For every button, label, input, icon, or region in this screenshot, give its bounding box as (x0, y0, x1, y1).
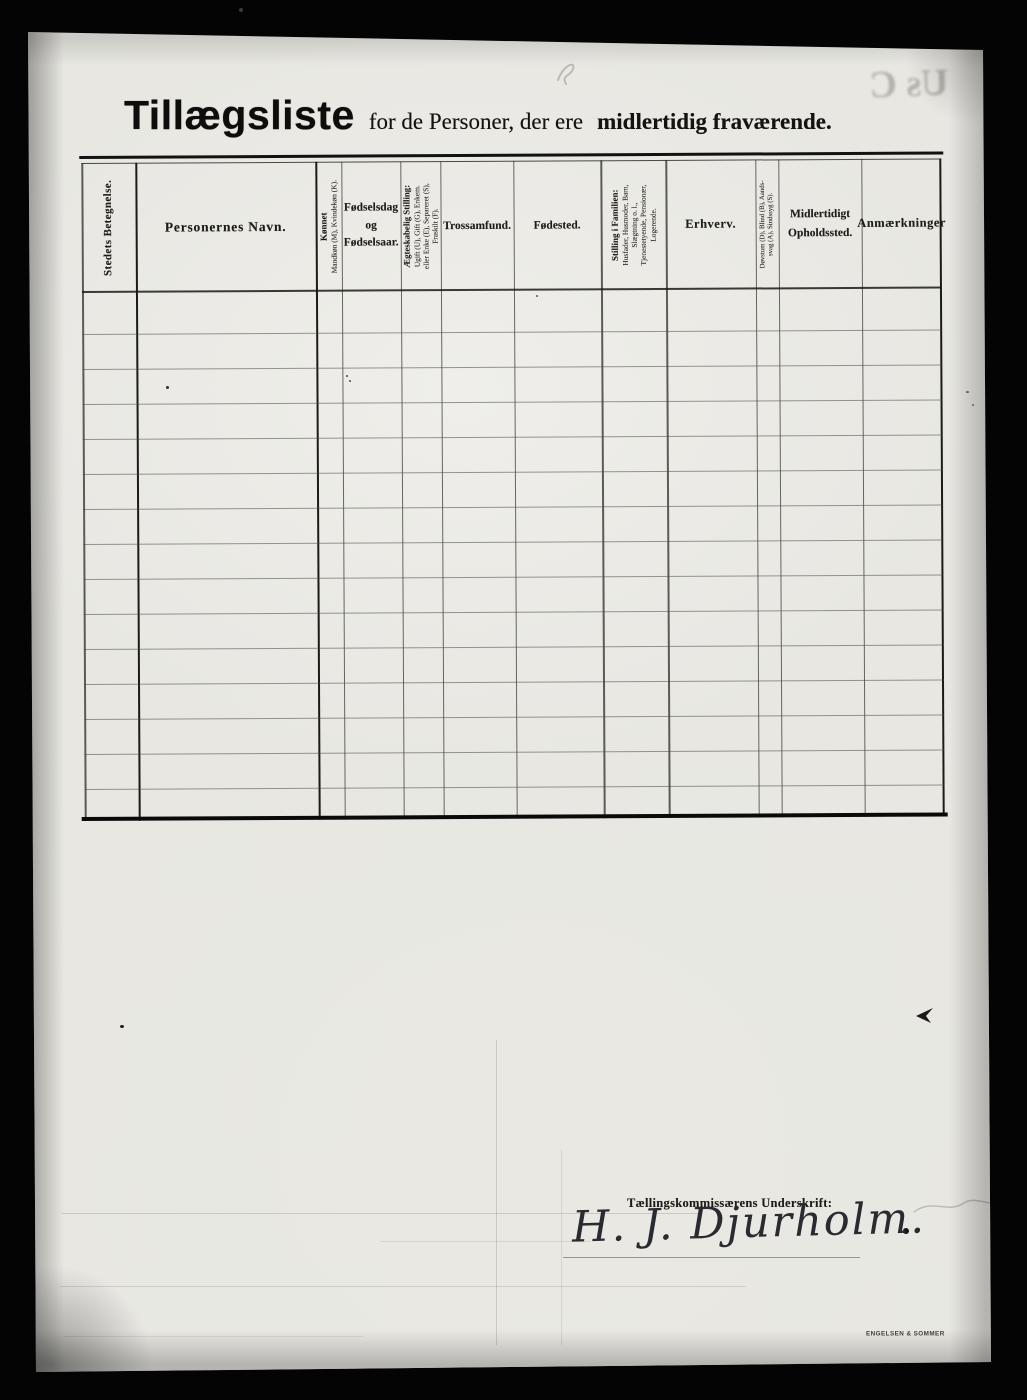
column-header-stilling-i-familien: Stilling i Familien: Husfader, Husmoder,… (600, 161, 666, 288)
bleed-through-line (496, 1040, 497, 1345)
scan-border-speck (239, 8, 243, 12)
bleed-through-line (64, 1336, 364, 1337)
vertical-label: Døvstum (D), Blind (B), Aands- svag (A),… (758, 162, 776, 286)
vertical-label: Stilling i Familien: Husfader, Husmoder,… (609, 162, 657, 286)
bleed-through-line (60, 1286, 746, 1287)
column-title: Stilling i Familien: (609, 163, 620, 287)
column-header-foedested: Fødested. (513, 161, 601, 288)
column-subtitle: Mandkøn (M), Kvindekøn (K). (329, 164, 339, 288)
column-header-personernes-navn: Personernes Navn. (135, 163, 316, 291)
vertical-label: Stedets Betegnelse. (102, 165, 116, 289)
ink-speck (120, 1025, 124, 1028)
ink-speck (349, 380, 351, 382)
ink-speck (966, 391, 969, 393)
column-title: Anmærkninger (857, 215, 946, 230)
column-header-midlertidigt-opholdssted: Midlertidigt Opholdssted. (778, 160, 862, 287)
column-header-doevstum: Døvstum (D), Blind (B), Aands- svag (A),… (755, 160, 779, 287)
bleed-through-line (561, 1150, 562, 1345)
ink-speck (166, 386, 169, 389)
bleed-through-text: Us C (837, 60, 980, 109)
column-title: Fødselsdag og Fødselsaar. (344, 199, 399, 253)
column-header-erhverv: Erhverv. (665, 160, 756, 287)
scanned-census-page: { "document": { "title": { "main": "Till… (0, 0, 1027, 1400)
title-connector: for de Personer, der ere (369, 109, 583, 135)
bleed-through-line (380, 1241, 590, 1242)
column-title: Fødested. (534, 219, 581, 231)
column-header-anmaerkninger: Anmærkninger (861, 160, 942, 287)
column-title: Kønnet (318, 164, 329, 288)
title-rule-thick (79, 151, 943, 159)
column-subtitle: Døvstum (D), Blind (B), Aands- svag (A),… (758, 162, 776, 286)
column-title: Personernes Navn. (165, 218, 287, 235)
ink-speck (972, 404, 974, 406)
table-body-rows (82, 288, 945, 816)
census-table: Stedets Betegnelse. Personernes Navn. Kø… (81, 152, 944, 824)
smudge-mark (552, 56, 586, 90)
vertical-label: Ægteskabelig Stilling: Ugift (U), Gift (… (401, 164, 440, 288)
column-subtitle: Husfader, Husmoder, Barn, Slægtning o. l… (620, 162, 658, 286)
column-title: Midlertidigt Opholdssted. (788, 205, 852, 242)
paper-sheet: Us C Tillægsliste for de Personer, der e… (0, 0, 1027, 1400)
column-header-koennet: Kønnet Mandkøn (M), Kvindekøn (K). (315, 163, 342, 290)
document-title: Tillægsliste for de Personer, der ere mi… (124, 92, 832, 139)
column-header-trossamfund: Trossamfund. (440, 162, 514, 289)
ink-speck (536, 295, 538, 297)
vertical-label: Kønnet Mandkøn (M), Kvindekøn (K). (318, 164, 339, 288)
column-title: Stedets Betegnelse. (102, 165, 116, 289)
ink-speck (346, 375, 348, 377)
pencil-scribble (912, 1188, 1024, 1230)
column-title: Trossamfund. (443, 219, 511, 231)
column-title: Erhverv. (685, 217, 736, 232)
title-emphasis: midlertidig fraværende. (597, 109, 832, 135)
column-subtitle: Ugift (U), Gift (G), Enkem. eller Enke (… (412, 164, 440, 288)
signature-line (563, 1257, 860, 1258)
column-header-aegteskabelig-stilling: Ægteskabelig Stilling: Ugift (U), Gift (… (400, 162, 441, 289)
column-title: Ægteskabelig Stilling: (401, 164, 412, 288)
title-main: Tillægsliste (124, 92, 355, 139)
scan-background: Us C Tillægsliste for de Personer, der e… (0, 0, 1027, 1400)
signature-handwriting: H. J. Djurholm. (571, 1193, 926, 1252)
column-header-foedselsdag: Fødselsdag og Fødselsaar. (341, 162, 401, 289)
printer-imprint: ENGELSEN & SOMMER (866, 1331, 945, 1337)
column-header-stedets-betegnelse: Stedets Betegnelse. (81, 164, 136, 291)
ink-arrow-mark (914, 1006, 938, 1026)
